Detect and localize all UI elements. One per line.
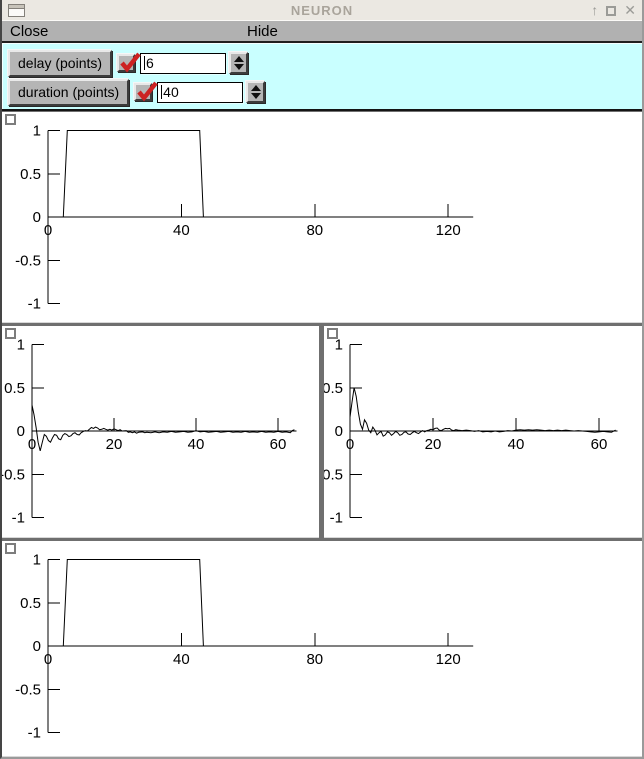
y-tick-label: -1 [28, 296, 41, 313]
duration-value: 40 [163, 84, 179, 100]
delay-button[interactable]: delay (points) [8, 50, 112, 77]
data-curve [350, 388, 616, 436]
minimize-icon[interactable]: ↑ [591, 2, 598, 19]
y-tick-label: 1 [17, 337, 25, 354]
close-icon[interactable]: ✕ [624, 2, 636, 19]
y-tick-label: 1 [335, 337, 343, 354]
y-tick-label: -0.5 [15, 681, 41, 698]
text-caret [161, 85, 162, 99]
window-title: NEURON [2, 3, 642, 18]
menu-item-hide[interactable]: Hide [247, 23, 278, 40]
y-tick-label: -1 [28, 725, 41, 742]
duration-row: duration (points) 40 [8, 79, 642, 105]
graph-panel-spectrum-left[interactable]: 10.50-0.5-10204060 [2, 326, 319, 537]
y-tick-label: 0 [335, 423, 343, 440]
y-tick-label: 1 [33, 552, 41, 569]
delay-spinner[interactable] [229, 52, 248, 74]
y-tick-label: 0 [33, 209, 41, 226]
y-tick-label: 0.5 [20, 166, 41, 183]
text-caret [144, 56, 145, 70]
x-tick-label: 40 [173, 222, 190, 239]
data-curve [48, 131, 473, 218]
x-tick-label: 0 [44, 222, 52, 239]
x-tick-label: 0 [44, 651, 52, 668]
duration-value-field[interactable]: 40 [157, 82, 243, 103]
graph-area: 10.50-0.5-104080120 10.50-0.5-10204060 1… [2, 111, 642, 756]
y-tick-label: -0.5 [15, 252, 41, 269]
neuron-window: NEURON ↑ ✕ Close Hide delay (points) 6 [0, 0, 644, 759]
chart-spectrum-right: 10.50-0.5-10204060 [324, 326, 642, 537]
delay-row: delay (points) 6 [8, 50, 642, 76]
spin-up-icon[interactable] [234, 56, 244, 62]
x-tick-label: 0 [28, 436, 36, 453]
x-tick-label: 120 [436, 651, 461, 668]
delay-value-field[interactable]: 6 [140, 53, 226, 74]
graph-panel-spectrum-right[interactable]: 10.50-0.5-10204060 [324, 326, 642, 537]
x-tick-label: 60 [270, 436, 287, 453]
duration-button[interactable]: duration (points) [8, 79, 129, 106]
spin-down-icon[interactable] [251, 93, 261, 99]
x-tick-label: 20 [106, 436, 123, 453]
graph-panel-reconstruction[interactable]: 10.50-0.5-104080120 [2, 541, 642, 756]
data-curve [48, 560, 473, 647]
y-tick-label: -1 [12, 510, 25, 527]
data-curve [32, 405, 294, 451]
y-tick-label: 0.5 [324, 380, 343, 397]
spin-up-icon[interactable] [251, 85, 261, 91]
parameter-panel: delay (points) 6 duration (points) [2, 43, 642, 111]
checkmark-icon [135, 79, 159, 101]
spin-down-icon[interactable] [234, 64, 244, 70]
maximize-icon[interactable] [606, 6, 616, 16]
y-tick-label: 0 [17, 423, 25, 440]
menu-bar: Close Hide [2, 21, 642, 43]
spectrum-row: 10.50-0.5-10204060 10.50-0.5-10204060 [2, 326, 642, 537]
y-tick-label: -1 [330, 510, 343, 527]
x-tick-label: 40 [188, 436, 205, 453]
title-bar[interactable]: NEURON ↑ ✕ [2, 0, 642, 21]
duration-checkbox[interactable] [134, 83, 152, 101]
y-tick-label: 1 [33, 123, 41, 140]
y-tick-label: 0 [33, 638, 41, 655]
x-tick-label: 80 [306, 651, 323, 668]
x-tick-label: 40 [508, 436, 525, 453]
chart-spectrum-left: 10.50-0.5-10204060 [2, 326, 319, 537]
x-tick-label: 120 [436, 222, 461, 239]
y-tick-label: -0.5 [324, 466, 343, 483]
x-tick-label: 80 [306, 222, 323, 239]
graph-panel-stimulus[interactable]: 10.50-0.5-104080120 [2, 112, 642, 322]
chart-stimulus-pulse: 10.50-0.5-104080120 [2, 112, 642, 322]
delay-checkbox[interactable] [117, 54, 135, 72]
menu-item-close[interactable]: Close [10, 23, 48, 40]
x-tick-label: 20 [425, 436, 442, 453]
y-tick-label: 0.5 [20, 595, 41, 612]
delay-value: 6 [146, 55, 154, 71]
duration-spinner[interactable] [246, 81, 265, 103]
x-tick-label: 40 [173, 651, 190, 668]
x-tick-label: 0 [346, 436, 354, 453]
y-tick-label: 0.5 [4, 380, 25, 397]
x-tick-label: 60 [591, 436, 608, 453]
chart-reconstructed-pulse: 10.50-0.5-104080120 [2, 541, 642, 756]
y-tick-label: -0.5 [2, 466, 25, 483]
checkmark-icon [118, 50, 142, 72]
